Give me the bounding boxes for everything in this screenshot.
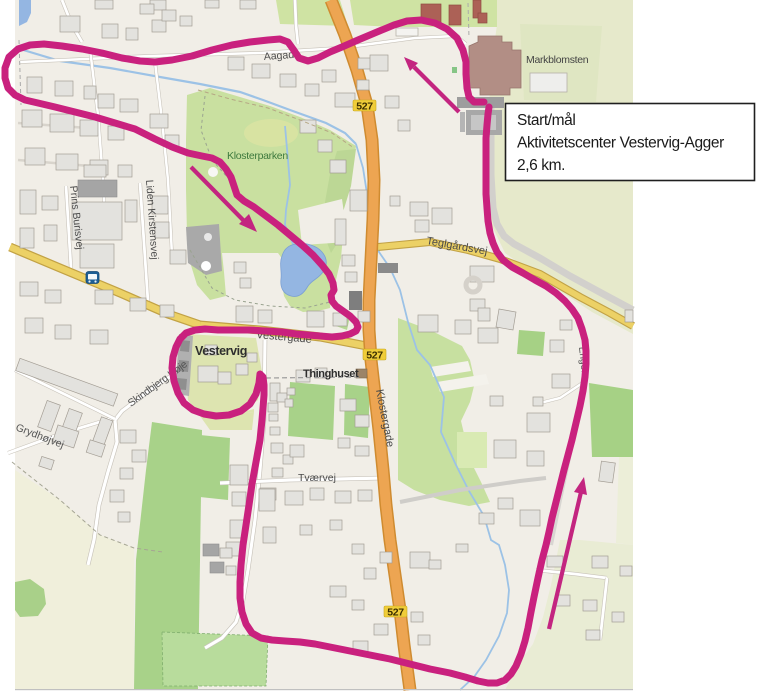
svg-text:Start/mål: Start/mål — [517, 112, 575, 129]
svg-text:Tværvej: Tværvej — [298, 472, 336, 484]
svg-text:527: 527 — [356, 101, 373, 113]
svg-text:Thinghuset: Thinghuset — [303, 368, 359, 380]
svg-text:Klosterparken: Klosterparken — [227, 150, 288, 162]
svg-text:2,6 km.: 2,6 km. — [517, 157, 565, 174]
svg-text:Markblomsten: Markblomsten — [526, 54, 589, 66]
svg-text:Vestervig: Vestervig — [195, 344, 247, 358]
svg-text:Aktivitetscenter Vestervig-Agg: Aktivitetscenter Vestervig-Agger — [517, 135, 724, 152]
svg-text:527: 527 — [387, 607, 404, 619]
svg-text:527: 527 — [366, 350, 383, 362]
